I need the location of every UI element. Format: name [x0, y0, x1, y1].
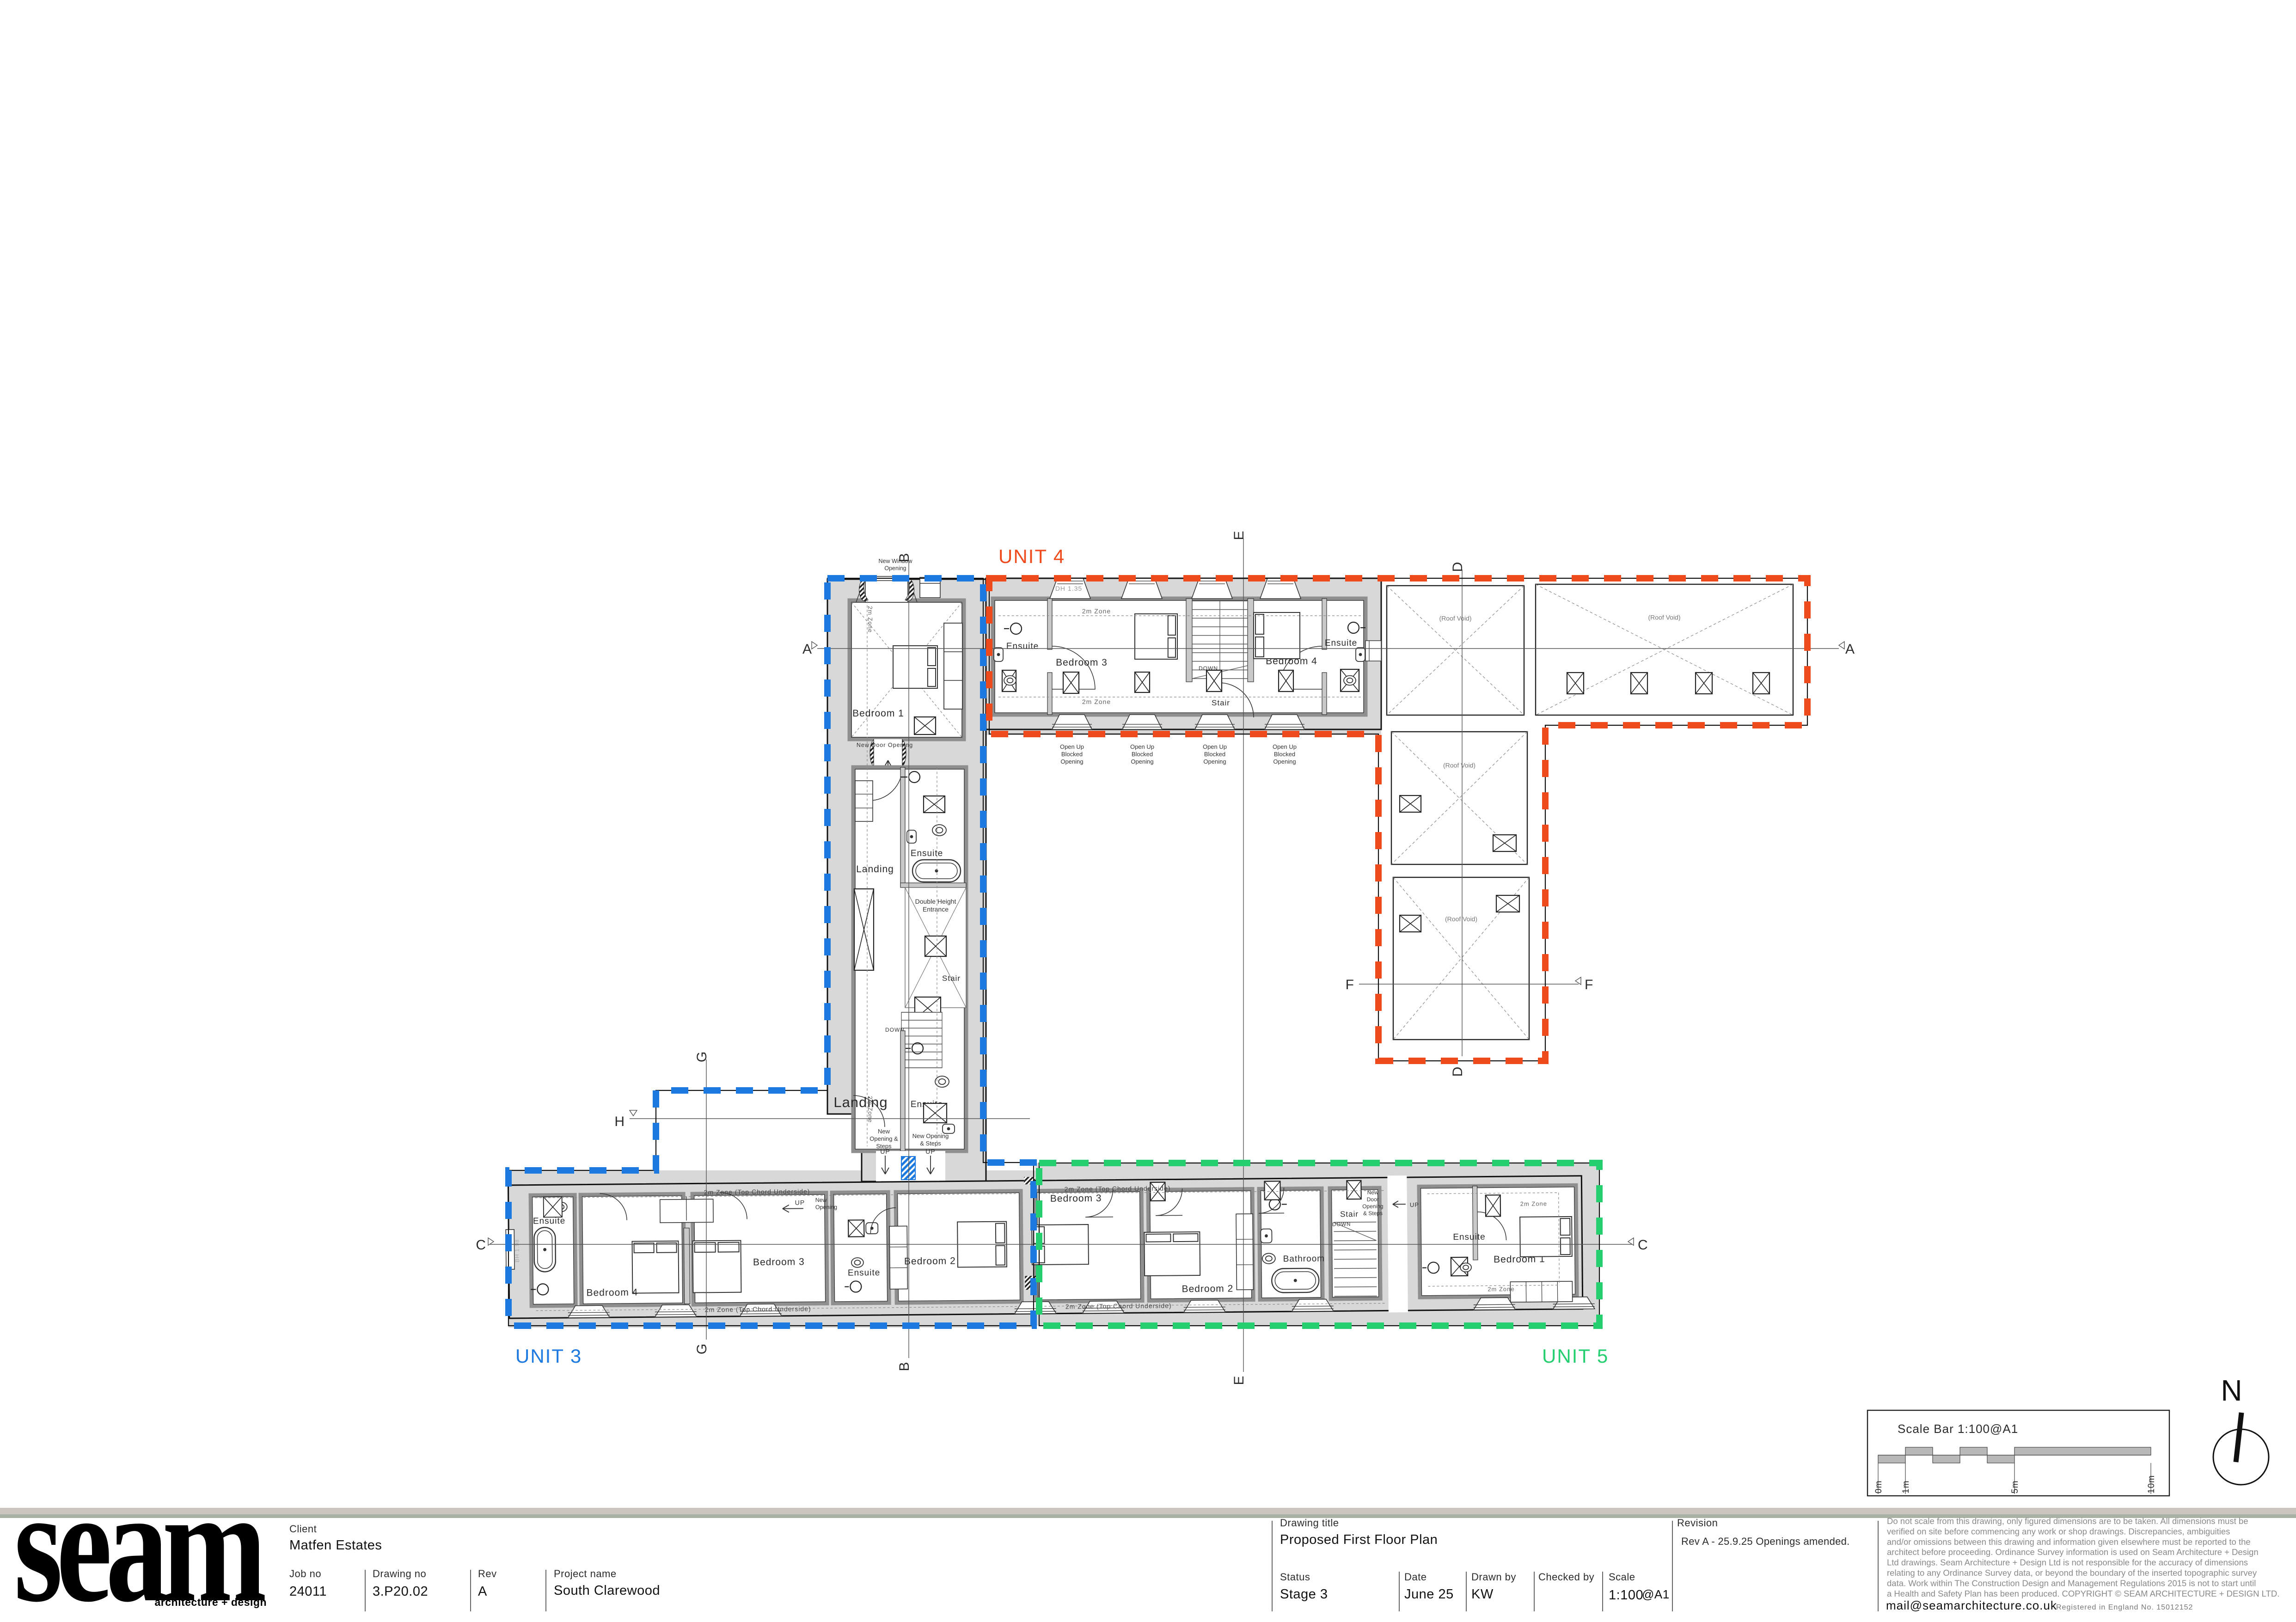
- svg-text:3.P20.02: 3.P20.02: [373, 1584, 428, 1599]
- svg-text:KW: KW: [1471, 1587, 1494, 1602]
- svg-text:E: E: [1231, 530, 1247, 540]
- svg-text:2m Zone: 2m Zone: [1520, 1200, 1547, 1207]
- svg-text:1:100: 1:100: [1609, 1588, 1643, 1603]
- svg-text:Drawn by: Drawn by: [1471, 1571, 1516, 1583]
- svg-text:Do not scale from this drawing: Do not scale from this drawing, only fig…: [1887, 1516, 2279, 1598]
- svg-text:Revision: Revision: [1677, 1517, 1718, 1529]
- svg-text:Stage 3: Stage 3: [1280, 1587, 1328, 1602]
- svg-text:H: H: [614, 1114, 625, 1129]
- svg-text:UP: UP: [925, 1148, 935, 1155]
- svg-text:Landing: Landing: [833, 1094, 888, 1110]
- svg-text:UP: UP: [795, 1199, 805, 1206]
- svg-text:2m Zone: 2m Zone: [1082, 607, 1111, 615]
- svg-text:(Roof Void): (Roof Void): [1648, 613, 1680, 621]
- svg-text:Client: Client: [289, 1523, 317, 1535]
- svg-text:A: A: [802, 642, 812, 657]
- svg-text:Stair: Stair: [1212, 698, 1230, 707]
- svg-text:F: F: [1585, 977, 1593, 992]
- svg-text:10m: 10m: [2147, 1475, 2156, 1493]
- svg-text:24011: 24011: [289, 1584, 327, 1599]
- svg-text:Job no: Job no: [289, 1568, 321, 1579]
- svg-text:F: F: [1346, 977, 1354, 992]
- svg-text:N: N: [2221, 1374, 2242, 1407]
- svg-text:B: B: [897, 552, 912, 562]
- svg-text:2m Zone: 2m Zone: [1082, 698, 1111, 705]
- svg-text:(Roof Void): (Roof Void): [1439, 615, 1471, 622]
- svg-text:Stair: Stair: [1340, 1210, 1359, 1218]
- svg-text:Ensuite: Ensuite: [911, 849, 943, 858]
- svg-text:Ensuite: Ensuite: [1453, 1232, 1486, 1243]
- svg-text:B: B: [897, 1361, 912, 1371]
- svg-text:Open UpBlockedOpening: Open UpBlockedOpening: [1273, 743, 1297, 765]
- svg-text:Project name: Project name: [554, 1568, 617, 1579]
- svg-text:Rev: Rev: [478, 1568, 497, 1579]
- svg-text:D: D: [1450, 562, 1465, 572]
- svg-text:Checked by: Checked by: [1538, 1571, 1594, 1583]
- svg-text:@A1: @A1: [1642, 1587, 1670, 1601]
- svg-text:Bedroom 3: Bedroom 3: [1050, 1193, 1102, 1204]
- svg-text:Bedroom 3: Bedroom 3: [753, 1256, 805, 1267]
- svg-text:G: G: [694, 1343, 710, 1354]
- svg-text:5m: 5m: [2010, 1481, 2020, 1493]
- svg-text:South Clarewood: South Clarewood: [554, 1583, 660, 1598]
- svg-text:DH 1.35: DH 1.35: [1055, 585, 1082, 592]
- svg-text:2m Zone (Top Chord Underside): 2m Zone (Top Chord Underside): [704, 1187, 810, 1196]
- svg-text:UNIT 3: UNIT 3: [515, 1345, 582, 1367]
- svg-text:Registered in England No. 1501: Registered in England No. 15012152: [2056, 1604, 2193, 1611]
- svg-text:0m: 0m: [1874, 1481, 1884, 1493]
- svg-text:New Door Opening: New Door Opening: [857, 742, 913, 748]
- svg-text:A: A: [1845, 642, 1855, 657]
- svg-text:Matfen Estates: Matfen Estates: [289, 1538, 382, 1553]
- svg-text:C: C: [1638, 1237, 1648, 1253]
- svg-text:Scale: Scale: [1609, 1571, 1635, 1583]
- svg-text:2m Zone: 2m Zone: [1488, 1285, 1514, 1293]
- svg-text:architecture + design: architecture + design: [155, 1596, 267, 1608]
- svg-text:Bedroom 3: Bedroom 3: [1056, 657, 1108, 668]
- svg-text:Landing: Landing: [856, 864, 894, 875]
- svg-text:UP: UP: [880, 1148, 890, 1155]
- svg-text:Stair: Stair: [942, 974, 961, 983]
- svg-text:2m Zone: 2m Zone: [867, 606, 874, 633]
- svg-text:G: G: [694, 1051, 710, 1062]
- svg-text:UNIT 5: UNIT 5: [1542, 1345, 1609, 1367]
- svg-text:Proposed First Floor Plan: Proposed First Floor Plan: [1280, 1532, 1438, 1547]
- svg-text:June 25: June 25: [1404, 1587, 1454, 1602]
- svg-text:UNIT 4: UNIT 4: [998, 545, 1065, 567]
- svg-text:Rev A - 25.9.25 Openings amend: Rev A - 25.9.25 Openings amended.: [1681, 1536, 1850, 1547]
- svg-text:Ensuite: Ensuite: [533, 1216, 566, 1226]
- svg-text:Open UpBlockedOpening: Open UpBlockedOpening: [1060, 743, 1084, 765]
- svg-text:Open UpBlockedOpening: Open UpBlockedOpening: [1203, 743, 1227, 765]
- svg-text:Drawing no: Drawing no: [373, 1568, 426, 1579]
- svg-text:Drawing title: Drawing title: [1280, 1517, 1339, 1529]
- svg-text:Date: Date: [1404, 1571, 1427, 1583]
- svg-text:Bedroom 1: Bedroom 1: [852, 708, 904, 719]
- svg-text:Open UpBlockedOpening: Open UpBlockedOpening: [1130, 743, 1154, 765]
- svg-text:1m: 1m: [1901, 1481, 1911, 1493]
- svg-text:E: E: [1231, 1375, 1247, 1385]
- svg-text:Bathroom: Bathroom: [1283, 1254, 1325, 1264]
- svg-text:Ensuite: Ensuite: [848, 1268, 881, 1278]
- svg-text:UP: UP: [1410, 1201, 1419, 1208]
- svg-text:2m Zone (Top Chord Underside): 2m Zone (Top Chord Underside): [1065, 1302, 1172, 1310]
- svg-text:D: D: [1450, 1066, 1465, 1077]
- svg-text:2m Zone (Top Chord Underside): 2m Zone (Top Chord Underside): [705, 1305, 811, 1313]
- svg-text:(Roof Void): (Roof Void): [1445, 915, 1477, 923]
- svg-text:mail@seamarchitecture.co.uk: mail@seamarchitecture.co.uk: [1886, 1598, 2057, 1612]
- svg-text:DOWN: DOWN: [1332, 1222, 1351, 1227]
- svg-text:Ensuite: Ensuite: [1006, 642, 1039, 651]
- svg-text:Bedroom 2: Bedroom 2: [1182, 1283, 1233, 1294]
- svg-text:Bedroom 2: Bedroom 2: [904, 1256, 956, 1267]
- svg-text:Scale Bar 1:100@A1: Scale Bar 1:100@A1: [1898, 1422, 2018, 1436]
- svg-text:BH 1.98: BH 1.98: [514, 1239, 520, 1262]
- svg-text:Bedroom 4: Bedroom 4: [586, 1287, 638, 1298]
- svg-text:C: C: [476, 1237, 486, 1253]
- svg-text:(Roof Void): (Roof Void): [1443, 761, 1476, 769]
- svg-text:A: A: [478, 1584, 487, 1599]
- svg-text:2m Zone (Top Chord Underside): 2m Zone (Top Chord Underside): [1065, 1185, 1171, 1193]
- svg-text:Ensuite: Ensuite: [1325, 638, 1357, 648]
- svg-text:Status: Status: [1280, 1571, 1310, 1583]
